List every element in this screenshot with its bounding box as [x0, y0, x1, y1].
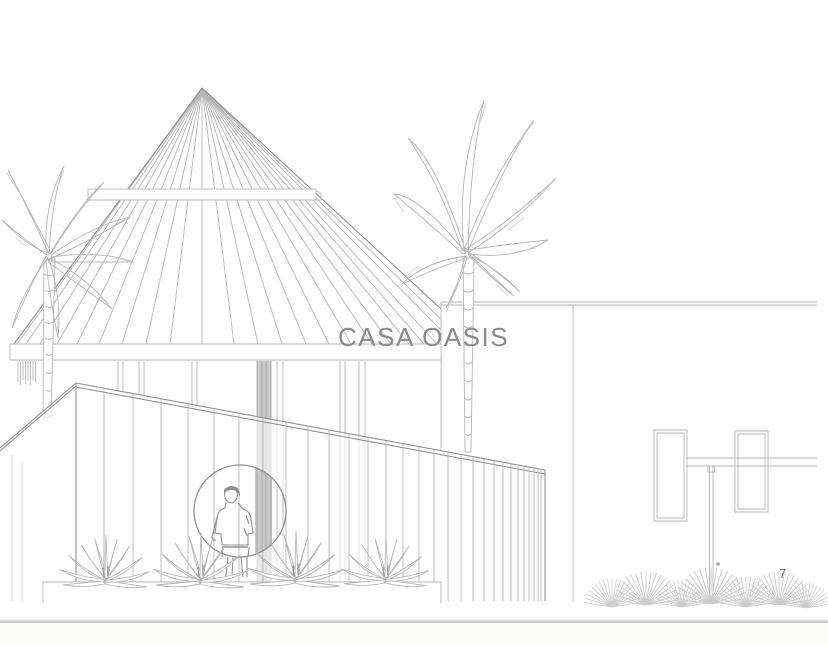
- outdoor-shower-frame: [654, 430, 817, 600]
- document-page: CASA OASIS 7: [0, 0, 828, 645]
- palm-tree-right: [394, 100, 556, 452]
- project-title: CASA OASIS: [338, 322, 509, 353]
- palm-tree-left: [2, 166, 134, 417]
- page-number: 7: [779, 566, 786, 581]
- roof-ring-band: [88, 189, 321, 200]
- planter-box: [43, 582, 441, 603]
- conical-roof: [14, 88, 441, 344]
- below-page-area: [0, 623, 828, 645]
- fan-palm-grass: [584, 567, 828, 608]
